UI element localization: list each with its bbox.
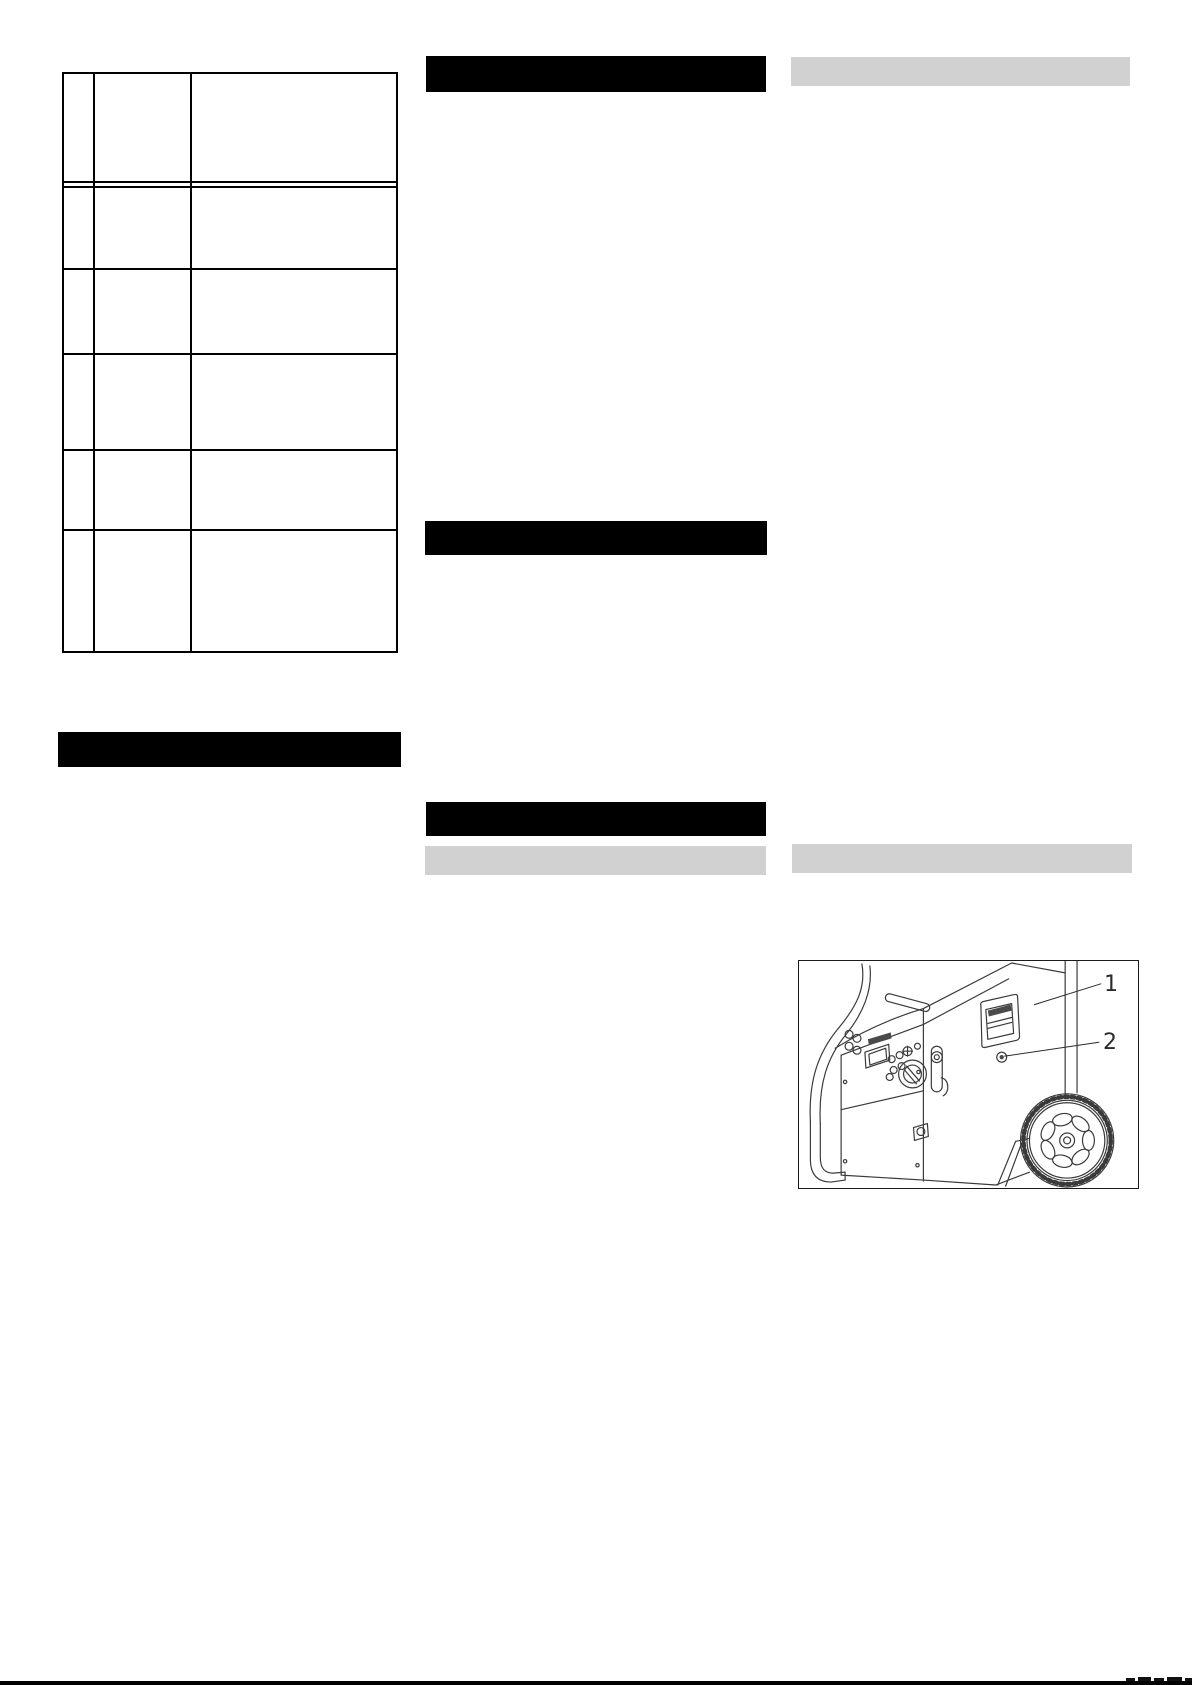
table-rule bbox=[64, 181, 396, 183]
table-rule bbox=[64, 449, 396, 451]
heading-bar-left bbox=[58, 732, 401, 767]
footer-mark bbox=[1126, 1678, 1135, 1681]
table-rule bbox=[64, 186, 396, 188]
heading-bar-middle-1 bbox=[426, 56, 766, 92]
heading-bar-middle-2 bbox=[425, 521, 767, 555]
callout-label-1: 1 bbox=[1104, 974, 1118, 996]
machine-illustration bbox=[799, 961, 1138, 1188]
footer-rule bbox=[0, 1681, 1192, 1685]
callout-label-2: 2 bbox=[1103, 1032, 1117, 1054]
heading-bar-middle-3 bbox=[426, 802, 766, 836]
subheading-bar-right-1 bbox=[791, 57, 1130, 86]
support-pole bbox=[1065, 961, 1077, 1096]
side-panel-handle bbox=[981, 994, 1020, 1047]
table-rule bbox=[64, 529, 396, 531]
frame-tube bbox=[810, 964, 870, 1182]
table-rule bbox=[64, 268, 396, 270]
spec-table bbox=[62, 72, 398, 653]
table-rule bbox=[64, 353, 396, 355]
table-column-divider bbox=[190, 74, 192, 651]
table-column-divider bbox=[93, 74, 95, 651]
wheel bbox=[1021, 1094, 1114, 1187]
footer-mark bbox=[1138, 1677, 1151, 1681]
manual-page: 1 2 bbox=[0, 0, 1192, 1685]
control-panel bbox=[843, 1030, 947, 1166]
subheading-bar-right-2 bbox=[792, 844, 1132, 873]
footer-mark bbox=[1154, 1678, 1164, 1681]
footer-mark bbox=[1167, 1677, 1182, 1681]
panel-knob bbox=[997, 1052, 1007, 1062]
figure-frame bbox=[798, 960, 1139, 1189]
footer-mark bbox=[1185, 1678, 1192, 1681]
subheading-bar-middle bbox=[425, 846, 766, 875]
